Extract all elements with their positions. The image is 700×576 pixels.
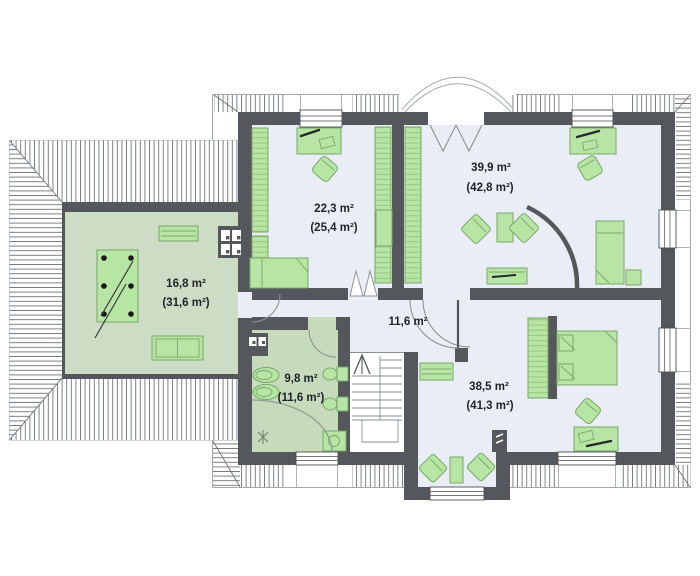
window-south-bedroom	[558, 452, 616, 465]
wardrobe	[252, 128, 268, 232]
chimney-bathroom	[246, 333, 268, 356]
window-east-1	[659, 210, 676, 248]
bathroom-area-label: 9,8 m²	[284, 373, 317, 385]
dresser	[376, 210, 392, 246]
desk	[570, 128, 616, 154]
floor-plan: 16,8 m² (31,6 m²) 22,3 m² (25,4 m²) 39,9…	[0, 0, 700, 576]
sideboard	[487, 268, 527, 284]
chimney-terrace	[218, 226, 244, 258]
bench	[159, 226, 198, 241]
terrace-area-label: 16,8 m²	[166, 278, 206, 290]
window-south-bathroom	[296, 452, 338, 465]
desk	[574, 427, 618, 451]
bathroom-total-label: (11,6 m²)	[278, 392, 325, 404]
washing-machine	[323, 431, 346, 451]
window-north-1	[300, 110, 342, 127]
bed-single	[250, 258, 308, 288]
arch-dormer-inner	[404, 84, 511, 113]
desk	[297, 128, 341, 154]
wardrobe-small	[252, 236, 268, 258]
bedroom-lower-right-area-label: 38,5 m²	[469, 381, 509, 393]
bed-double	[557, 331, 617, 385]
terrace-floor	[63, 204, 239, 376]
bedroom-upper-left-area-label: 22,3 m²	[314, 203, 354, 215]
window-north-2	[572, 110, 613, 127]
room-upper-right-area-label: 39,9 m²	[471, 162, 511, 174]
sink	[253, 385, 279, 400]
sink	[253, 368, 279, 383]
side-table	[450, 457, 463, 483]
arch-dormer-outer	[399, 77, 516, 113]
wardrobe	[528, 318, 548, 398]
wardrobe-east	[375, 127, 391, 283]
bed-single	[596, 221, 624, 284]
dresser	[420, 363, 453, 380]
nightstand	[626, 270, 641, 285]
window-east-2	[659, 328, 676, 372]
room-upper-right-total-label: (42,8 m²)	[466, 182, 513, 194]
bay-furniture	[418, 452, 496, 483]
bedroom-lower-right-total-label: (41,3 m²)	[466, 400, 513, 412]
hall-area-label: 11,6 m²	[389, 316, 428, 328]
terrace-total-label: (31,6 m²)	[162, 297, 209, 309]
bedroom-upper-left-total-label: (25,4 m²)	[310, 222, 357, 234]
wardrobe-west	[405, 127, 421, 283]
window-bay	[430, 487, 484, 500]
sofa	[152, 336, 203, 360]
stairwell-floor	[350, 352, 404, 452]
